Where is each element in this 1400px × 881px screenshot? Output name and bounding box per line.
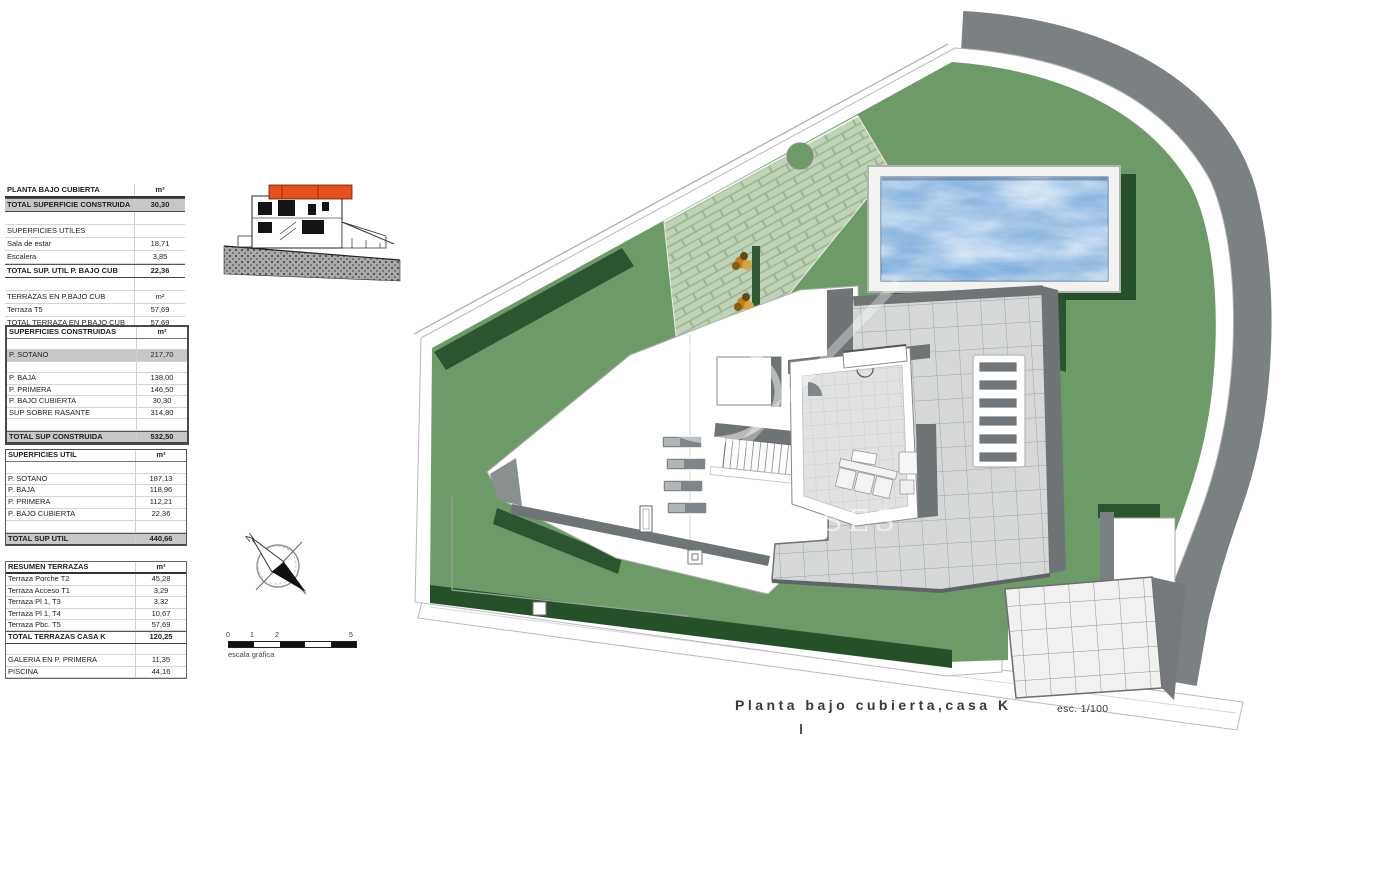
drawing-sheet: SES PLANTA BAJO CUBIERTAm²TOTAL SUPERFIC…: [0, 0, 1400, 881]
table-row: [7, 419, 187, 431]
row-value: m²: [135, 184, 185, 196]
row-label: Terraza Porche T2: [6, 574, 136, 584]
row-value: 30,30: [137, 396, 187, 407]
row-label: SUPERFICIES UTILES: [5, 225, 135, 237]
table-row: TOTAL SUPERFICIE CONSTRUIDA30,30: [5, 198, 185, 212]
row-value: [135, 225, 185, 237]
row-label: P. BAJA: [6, 485, 136, 496]
row-value: 44,16: [136, 667, 186, 677]
table-row: [7, 339, 187, 351]
table-row: TOTAL SUP. UTIL P. BAJO CUB22,36: [5, 264, 185, 278]
row-label: P. BAJO CUBIERTA: [6, 509, 136, 520]
table-row: P. PRIMERA112,21: [6, 497, 186, 509]
row-value: 3,29: [136, 586, 186, 596]
row-value: 57,69: [136, 620, 186, 630]
row-value: 45,28: [136, 574, 186, 584]
scale-tick: 0: [226, 632, 230, 639]
row-label: P. SOTANO: [6, 474, 136, 485]
row-label: PISCINA: [6, 667, 136, 677]
table-row: Sala de estar18,71: [5, 238, 185, 251]
drawing-scale: esc. 1/100: [1057, 703, 1108, 715]
row-label: [5, 278, 135, 290]
table-row: Terraza Acceso T13,29: [6, 586, 186, 597]
table-row: P. SOTANO187,13: [6, 474, 186, 486]
row-label: [7, 339, 137, 350]
table-superficies-util: SUPERFICIES UTILm²P. SOTANO187,13P. BAJA…: [5, 449, 187, 546]
row-label: PLANTA BAJO CUBIERTA: [5, 184, 135, 196]
row-label: TERRAZAS EN P.BAJO CUB: [5, 291, 135, 303]
row-value: 57,69: [135, 304, 185, 316]
scale-tick: 1: [250, 632, 254, 639]
row-label: [7, 419, 137, 430]
table-row: P. BAJA138,00: [7, 373, 187, 385]
table-row: PISCINA44,16: [6, 667, 186, 678]
table-row: GALERIA EN P. PRIMERA11,35: [6, 655, 186, 666]
table-row: Terraza T557,69: [5, 304, 185, 317]
row-label: Terraza Pbc. T5: [6, 620, 136, 630]
highlight-floor: [269, 185, 352, 199]
row-value: 3,32: [136, 597, 186, 607]
row-value: [136, 644, 186, 654]
table-row: SUPERFICIES CONSTRUIDASm²: [7, 327, 187, 339]
site-plan: SES: [0, 0, 1400, 881]
table-row: TOTAL SUP UTIL440,66: [6, 533, 186, 546]
row-value: 112,21: [136, 497, 186, 508]
row-value: 118,96: [136, 485, 186, 496]
row-label: SUPERFICIES CONSTRUIDAS: [7, 327, 137, 338]
section-elevation: [222, 182, 402, 287]
row-value: 532,50: [137, 432, 187, 443]
row-label: GALERIA EN P. PRIMERA: [6, 655, 136, 665]
row-value: 146,50: [137, 385, 187, 396]
row-label: P. BAJA: [7, 373, 137, 384]
title-tick-mark: [800, 724, 802, 734]
row-value: [137, 419, 187, 430]
row-value: m²: [136, 450, 186, 461]
watermark-text: SES: [822, 504, 900, 539]
drawing-title: Planta bajo cubierta,casa K: [735, 697, 1012, 713]
table-row: PLANTA BAJO CUBIERTAm²: [5, 184, 185, 198]
side-table: [900, 480, 914, 494]
row-label: Terraza Pl 1, T4: [6, 609, 136, 619]
row-label: SUPERFICIES UTIL: [6, 450, 136, 461]
scale-caption: escala gráfica: [228, 650, 274, 659]
pool: [868, 166, 1136, 300]
row-value: [136, 462, 186, 473]
row-label: TOTAL SUP UTIL: [6, 534, 136, 545]
row-value: [137, 362, 187, 373]
row-value: [135, 212, 185, 224]
table-row: TERRAZAS EN P.BAJO CUBm²: [5, 291, 185, 304]
table-row: [6, 521, 186, 533]
table-row: P. BAJA118,96: [6, 485, 186, 497]
table-planta-bajo-cubierta: PLANTA BAJO CUBIERTAm²TOTAL SUPERFICIE C…: [5, 184, 185, 330]
table-row: SUP SOBRE RASANTE314,80: [7, 408, 187, 420]
north-compass: N: [238, 524, 312, 598]
row-value: m²: [137, 327, 187, 338]
row-value: 18,71: [135, 238, 185, 250]
table-row: P. SOTANO217,70: [7, 350, 187, 362]
row-label: Terraza Pl 1, T3: [6, 597, 136, 607]
table-row: Terraza Pbc. T557,69: [6, 620, 186, 631]
graphic-scale: 0 1 2 5 escala gráfica: [228, 633, 356, 659]
table-row: Terraza Porche T245,28: [6, 574, 186, 585]
table-row: [5, 212, 185, 225]
row-label: Sala de estar: [5, 238, 135, 250]
row-label: [6, 644, 136, 654]
row-label: [7, 362, 137, 373]
ground-hatch: [224, 246, 400, 281]
table-row: [5, 278, 185, 291]
table-row: Terraza Pl 1, T33,32: [6, 597, 186, 608]
roof-void: [717, 357, 781, 407]
row-value: 11,35: [136, 655, 186, 665]
table-row: P. BAJO CUBIERTA30,30: [7, 396, 187, 408]
table-resumen-terrazas: RESUMEN TERRAZASm²Terraza Porche T245,28…: [5, 561, 187, 679]
row-value: 30,30: [135, 199, 185, 211]
armchair: [899, 452, 919, 474]
row-label: [6, 521, 136, 532]
row-value: 440,66: [136, 534, 186, 545]
row-value: 120,25: [136, 632, 186, 642]
patio: [1005, 577, 1186, 700]
row-label: [5, 212, 135, 224]
row-value: 314,80: [137, 408, 187, 419]
table-row: SUPERFICIES UTILES: [5, 225, 185, 238]
row-label: TOTAL SUP. UTIL P. BAJO CUB: [5, 265, 135, 277]
row-label: [6, 462, 136, 473]
row-value: 3,85: [135, 251, 185, 263]
table-superficies-construidas: SUPERFICIES CONSTRUIDASm²P. SOTANO217,70…: [5, 325, 189, 445]
row-value: 22,36: [135, 265, 185, 277]
row-label: Terraza T5: [5, 304, 135, 316]
row-value: 217,70: [137, 350, 187, 361]
table-row: TOTAL TERRAZAS CASA K120,25: [6, 631, 186, 643]
row-value: [135, 278, 185, 290]
row-label: TOTAL SUP CONSTRUIDA: [7, 432, 137, 443]
row-label: Terraza Acceso T1: [6, 586, 136, 596]
row-value: 138,00: [137, 373, 187, 384]
row-label: P. SOTANO: [7, 350, 137, 361]
table-row: Escalera3,85: [5, 251, 185, 264]
row-value: [136, 521, 186, 532]
scale-bar: [228, 641, 357, 648]
table-row: TOTAL SUP CONSTRUIDA532,50: [7, 431, 187, 444]
row-label: SUP SOBRE RASANTE: [7, 408, 137, 419]
louver-panel: [973, 355, 1025, 467]
row-label: Escalera: [5, 251, 135, 263]
table-row: SUPERFICIES UTILm²: [6, 450, 186, 462]
table-row: [7, 362, 187, 374]
row-label: P. BAJO CUBIERTA: [7, 396, 137, 407]
scale-tick: 5: [349, 632, 353, 639]
table-row: [6, 644, 186, 655]
table-row: RESUMEN TERRAZASm²: [6, 562, 186, 574]
table-row: [6, 462, 186, 474]
scale-tick: 2: [275, 632, 279, 639]
row-label: P. PRIMERA: [6, 497, 136, 508]
row-label: TOTAL SUPERFICIE CONSTRUIDA: [5, 199, 135, 211]
row-value: 187,13: [136, 474, 186, 485]
row-value: 22,36: [136, 509, 186, 520]
row-value: [137, 339, 187, 350]
table-row: Terraza Pl 1, T410,67: [6, 609, 186, 620]
table-row: P. BAJO CUBIERTA22,36: [6, 509, 186, 521]
row-label: P. PRIMERA: [7, 385, 137, 396]
row-value: m²: [136, 562, 186, 572]
row-label: RESUMEN TERRAZAS: [6, 562, 136, 572]
row-value: m²: [135, 291, 185, 303]
table-row: P. PRIMERA146,50: [7, 385, 187, 397]
row-value: 10,67: [136, 609, 186, 619]
row-label: TOTAL TERRAZAS CASA K: [6, 632, 136, 642]
